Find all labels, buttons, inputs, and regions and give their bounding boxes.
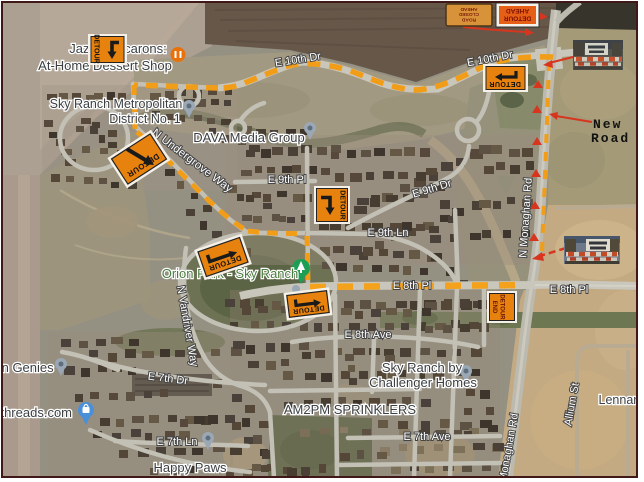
svg-text:DAVA Media Group: DAVA Media Group bbox=[193, 130, 305, 145]
svg-text:on Genies: on Genies bbox=[0, 360, 54, 375]
svg-text:AM2PM SPRINKLERS: AM2PM SPRINKLERS bbox=[284, 402, 417, 417]
svg-text:Road: Road bbox=[591, 131, 630, 146]
svg-text:District No. 1: District No. 1 bbox=[109, 112, 181, 126]
svg-text:E 7th Ln: E 7th Ln bbox=[157, 436, 198, 448]
svg-text:E 8th Pl: E 8th Pl bbox=[393, 280, 432, 292]
svg-text:ROAD: ROAD bbox=[461, 16, 476, 22]
svg-text:E 8th Ave: E 8th Ave bbox=[345, 329, 392, 341]
svg-text:AHEAD: AHEAD bbox=[460, 6, 478, 12]
svg-text:Challenger Homes: Challenger Homes bbox=[369, 375, 477, 390]
svg-text:kithreads.com: kithreads.com bbox=[0, 405, 72, 420]
svg-text:DETOUR: DETOUR bbox=[489, 80, 521, 87]
svg-text:E 9th Ln: E 9th Ln bbox=[368, 227, 409, 239]
svg-text:DETOUR: DETOUR bbox=[339, 190, 346, 219]
svg-text:Sky Ranch by: Sky Ranch by bbox=[382, 360, 463, 375]
svg-text:END: END bbox=[491, 301, 497, 314]
svg-text:Happy Paws: Happy Paws bbox=[154, 460, 227, 475]
svg-text:AHEAD: AHEAD bbox=[506, 7, 529, 14]
svg-text:E 9th Pl: E 9th Pl bbox=[268, 174, 307, 186]
svg-text:E 7th Ave: E 7th Ave bbox=[404, 431, 451, 443]
svg-text:DETOUR: DETOUR bbox=[499, 294, 505, 320]
svg-text:DETOUR: DETOUR bbox=[93, 34, 100, 63]
svg-text:New: New bbox=[593, 117, 622, 132]
svg-text:Lennar: Lennar bbox=[599, 393, 638, 407]
svg-text:E 8th Pl: E 8th Pl bbox=[550, 284, 589, 296]
svg-text:Sky Ranch Metropolitan: Sky Ranch Metropolitan bbox=[50, 97, 183, 111]
svg-text:DETOUR: DETOUR bbox=[504, 15, 532, 22]
svg-text:CLOSED: CLOSED bbox=[458, 11, 479, 17]
